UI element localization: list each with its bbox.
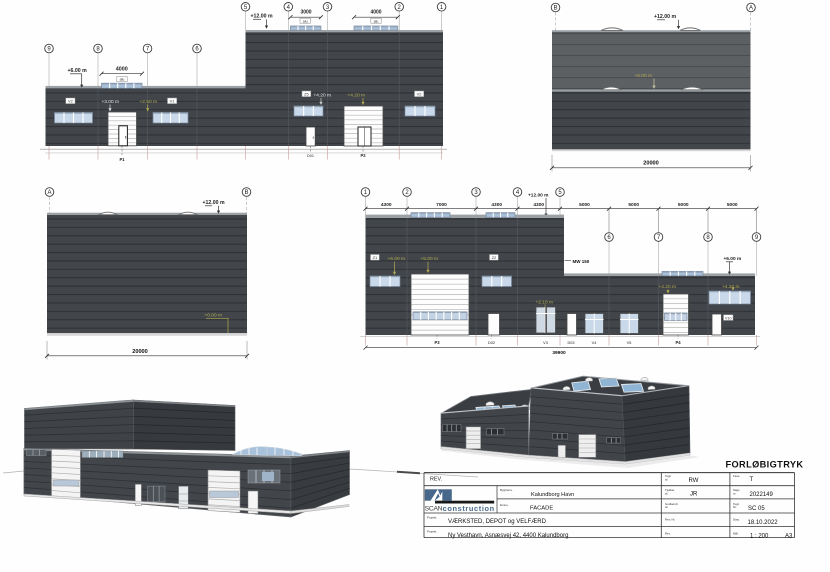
svg-text:T: T <box>750 477 754 483</box>
svg-text:VÆRKSTED, DEPOT og VELFÆRD: VÆRKSTED, DEPOT og VELFÆRD <box>448 519 547 525</box>
svg-text:D01: D01 <box>307 154 314 158</box>
svg-text:4000: 4000 <box>116 67 128 73</box>
svg-text:P3: P3 <box>434 340 440 345</box>
svg-text:FORLØBIGTRYK: FORLØBIGTRYK <box>726 460 804 470</box>
svg-text:4300: 4300 <box>381 202 392 208</box>
svg-text:Rev. Nr.: Rev. Nr. <box>665 518 675 522</box>
svg-text:Emne.: Emne. <box>500 503 509 507</box>
svg-text:V1: V1 <box>170 99 176 104</box>
svg-text:V2: V2 <box>417 92 423 97</box>
svg-text:+12.00 m: +12.00 m <box>251 14 273 20</box>
svg-text:Ny Vesthavn, Asnæsvej 42, 4400: Ny Vesthavn, Asnæsvej 42, 4400 Kalundbor… <box>448 533 568 539</box>
svg-text:Dato.: Dato. <box>733 518 740 522</box>
svg-text:V4: V4 <box>592 341 597 345</box>
svg-text:+6.00 m: +6.00 m <box>635 73 652 79</box>
svg-text:+12.00 m: +12.00 m <box>203 200 225 206</box>
svg-text:Projekt.: Projekt. <box>427 516 437 520</box>
svg-text:Kalundborg Havn: Kalundborg Havn <box>531 492 574 498</box>
svg-text:+2.50 m: +2.50 m <box>140 99 157 105</box>
svg-text:5000: 5000 <box>579 202 590 208</box>
svg-text:+4.20 m: +4.20 m <box>314 93 331 99</box>
svg-text:FACADE: FACADE <box>530 506 553 512</box>
svg-text:+4.20 m: +4.20 m <box>659 284 676 290</box>
svg-text:construction: construction <box>443 504 495 513</box>
svg-text:alu: alu <box>374 19 379 23</box>
svg-text:V10: V10 <box>725 316 732 320</box>
svg-text:+12.00 m: +12.00 m <box>654 14 676 20</box>
svg-text:+0.00 m: +0.00 m <box>205 313 222 319</box>
svg-text:+5.00 m: +5.00 m <box>421 256 438 262</box>
svg-text:+3.00 m: +3.00 m <box>102 99 119 105</box>
svg-text:P4: P4 <box>675 340 681 345</box>
svg-text:D03: D03 <box>568 341 575 345</box>
svg-text:V2: V2 <box>68 99 74 104</box>
svg-text:alu: alu <box>303 19 308 23</box>
svg-text:af.: af. <box>665 492 668 496</box>
svg-text:4000: 4000 <box>370 10 381 16</box>
svg-text:SC 05: SC 05 <box>748 506 765 512</box>
svg-text:Projekt.: Projekt. <box>427 530 437 534</box>
svg-text:20000: 20000 <box>643 161 659 167</box>
svg-text:B: B <box>553 6 557 12</box>
svg-text:39900: 39900 <box>552 350 566 356</box>
svg-text:18.10.2022: 18.10.2022 <box>748 520 779 526</box>
svg-text:MW 150: MW 150 <box>573 259 590 264</box>
svg-text:A: A <box>749 6 753 12</box>
svg-text:P1: P1 <box>119 157 125 162</box>
svg-text:A: A <box>47 190 51 196</box>
svg-text:2022149: 2022149 <box>750 492 774 498</box>
svg-text:JR: JR <box>690 491 698 497</box>
svg-text:RW: RW <box>689 478 699 484</box>
svg-text:Mål.: Mål. <box>733 532 739 536</box>
svg-text:+6.00 m: +6.00 m <box>724 256 742 262</box>
svg-text:alu: alu <box>120 78 125 82</box>
svg-text:Z1: Z1 <box>373 255 378 260</box>
svg-text:A3: A3 <box>785 534 793 540</box>
svg-text:SCAN: SCAN <box>425 506 443 513</box>
svg-text:4300: 4300 <box>491 202 502 208</box>
svg-text:7000: 7000 <box>436 202 447 208</box>
svg-text:4300: 4300 <box>533 202 544 208</box>
svg-text:Nr.: Nr. <box>733 505 737 509</box>
svg-text:1 : 200: 1 : 200 <box>750 534 769 540</box>
svg-text:nr.: nr. <box>733 492 736 496</box>
svg-text:REV.: REV. <box>430 477 442 483</box>
svg-text:Rev.: Rev. <box>665 532 671 536</box>
svg-text:af.: af. <box>665 478 668 482</box>
svg-text:af.: af. <box>665 505 668 509</box>
svg-text:D02: D02 <box>488 341 495 345</box>
svg-text:5000: 5000 <box>678 202 689 208</box>
svg-text:+6.00 m: +6.00 m <box>388 256 405 262</box>
svg-text:Bygherre.: Bygherre. <box>500 488 513 492</box>
svg-text:Z2: Z2 <box>492 255 497 260</box>
svg-text:+4.20 m: +4.20 m <box>348 93 365 99</box>
svg-text:+12.00 m: +12.00 m <box>528 193 548 199</box>
svg-text:5000: 5000 <box>628 202 639 208</box>
svg-text:P2: P2 <box>360 153 366 158</box>
svg-text:20000: 20000 <box>132 349 148 355</box>
svg-text:Z5: Z5 <box>304 92 309 97</box>
svg-text:+2.10 m: +2.10 m <box>536 300 553 306</box>
svg-text:3000: 3000 <box>300 10 311 16</box>
svg-text:+6.00 m: +6.00 m <box>68 68 88 74</box>
svg-text:Fase.: Fase. <box>733 474 740 478</box>
svg-text:V3: V3 <box>543 341 548 345</box>
svg-text:+4.20 m: +4.20 m <box>722 284 739 290</box>
svg-text:V5: V5 <box>627 341 632 345</box>
svg-text:B: B <box>244 190 248 196</box>
svg-text:5000: 5000 <box>727 202 738 208</box>
